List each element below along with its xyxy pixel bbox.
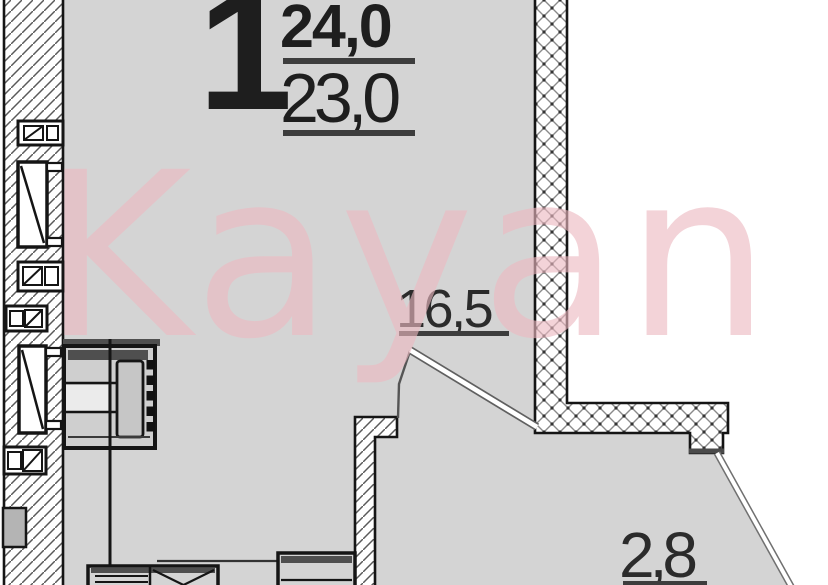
vent-box-icon: [18, 262, 63, 291]
duct-block-icon: [3, 508, 26, 547]
balcony-area-label: 2,8: [619, 523, 693, 585]
floorplan: 1 24,0 23,0 16,5 2,8 Kayan: [0, 0, 828, 585]
living-area-underline: [283, 130, 415, 136]
vent-box-icon: [4, 447, 46, 474]
kitchen-sink-icon: [88, 566, 218, 585]
rooms-count-label: 1: [198, 0, 293, 136]
living-area-value: 23,0: [280, 63, 396, 133]
vent-box-icon: [18, 121, 63, 145]
kitchen-cabinet-icon: [278, 553, 355, 585]
room-area-label: 16,5: [396, 282, 491, 336]
balcony-area-underline: [623, 581, 707, 585]
right-exterior-wall: [535, 0, 728, 453]
room-area-underline: [399, 331, 509, 336]
total-area-value: 24,0: [280, 0, 391, 57]
vent-box-icon: [6, 306, 47, 331]
